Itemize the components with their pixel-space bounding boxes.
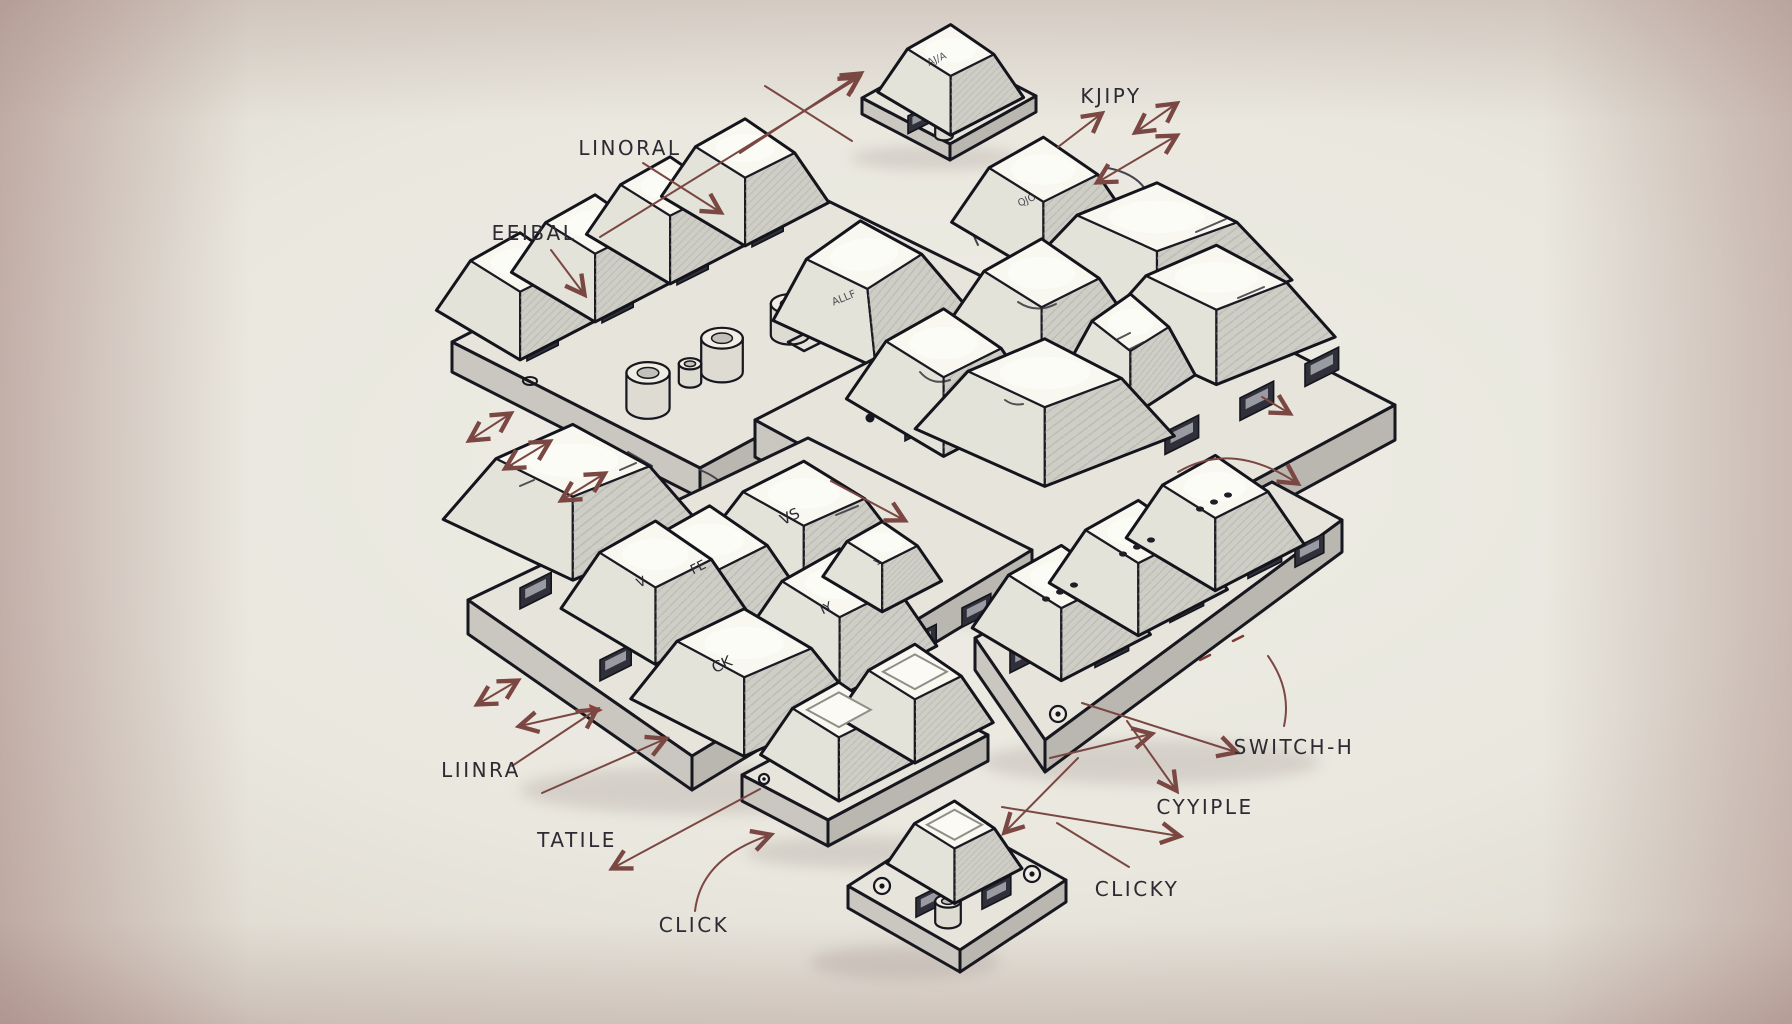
switch-single-top: AJ/A: [862, 25, 1036, 160]
illustration-canvas: ALLF QJO: [0, 0, 1792, 1024]
label-kjipy: KJIPY: [1080, 84, 1141, 108]
label-linoral: LINORAL: [578, 136, 681, 160]
label-switch-h: SWITCH-H: [1234, 735, 1355, 759]
arrow-line: [765, 86, 852, 141]
double-arrow: [478, 681, 517, 704]
label-tatile: TATILE: [536, 828, 617, 852]
double-arrow: [1098, 136, 1176, 182]
switch-stem: [679, 358, 701, 387]
arrow-line: [1057, 823, 1129, 867]
arrow-tail: [1268, 656, 1286, 726]
double-arrow: [470, 414, 510, 440]
arrow: [740, 74, 860, 153]
keyboard-switch-diagram: ALLF QJO: [0, 0, 1792, 1024]
double-arrow: [1136, 104, 1176, 132]
label-cyyiple: CYYIPLE: [1156, 795, 1253, 819]
label-eeibal: EEIBAL: [492, 221, 577, 245]
arrow: [1002, 807, 1179, 836]
switch-stem: [701, 328, 743, 383]
label-clicky: CLICKY: [1095, 877, 1180, 901]
label-liinra: LIINRA: [441, 758, 521, 782]
switch-stem: [626, 362, 669, 419]
label-click: CLICK: [659, 913, 730, 937]
arrow: [1058, 114, 1101, 147]
